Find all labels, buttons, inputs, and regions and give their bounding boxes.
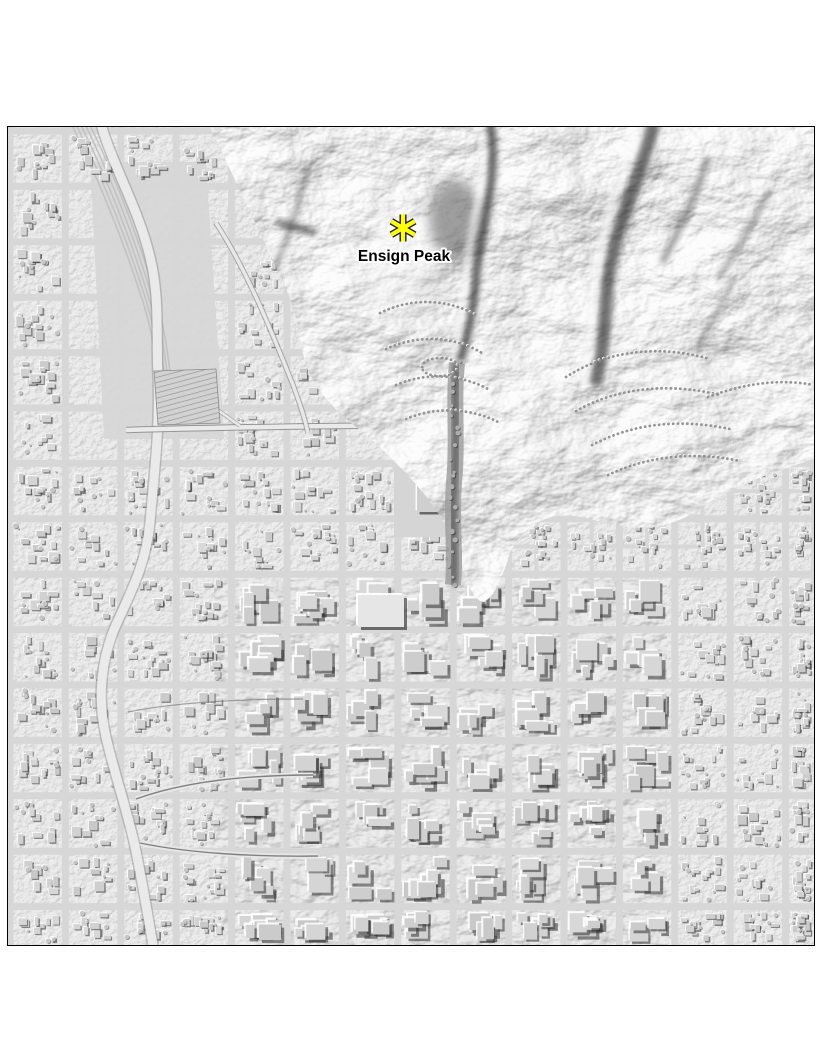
railyard-structure <box>154 369 220 425</box>
ensign-peak-label: Ensign Peak <box>358 248 451 265</box>
hillshade-map-canvas: Ensign Peak Ensign Peak <box>8 127 814 945</box>
hillshade-map[interactable]: Ensign Peak Ensign Peak <box>7 126 815 946</box>
conference-center-building <box>356 593 407 630</box>
